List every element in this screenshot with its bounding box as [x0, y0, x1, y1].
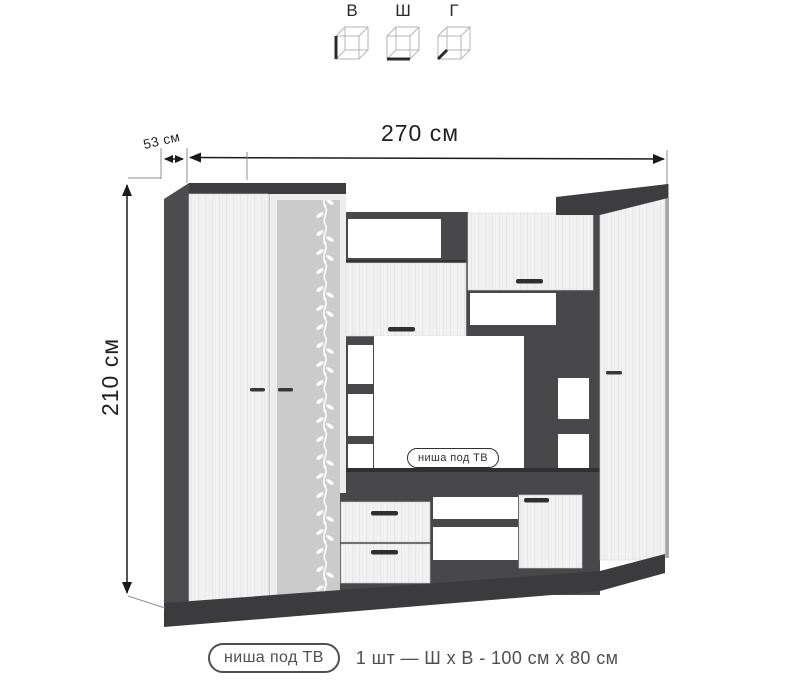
door-handle	[388, 327, 415, 332]
caption-badge: ниша под ТВ	[208, 643, 340, 673]
left-wardrobe-door	[189, 194, 268, 605]
lower-cabinet-door	[519, 495, 582, 568]
height-dimension-label: 210 см	[95, 327, 125, 427]
cube-height-icon	[333, 25, 371, 61]
cube-width-icon	[384, 25, 422, 61]
door-handle	[278, 388, 293, 392]
legend: В Ш	[328, 2, 478, 61]
cube-depth-icon	[435, 25, 473, 61]
legend-item-width: Ш	[384, 2, 422, 61]
door-handle	[524, 498, 549, 503]
tv-niche-label: ниша под ТВ	[407, 448, 499, 468]
open-niche	[348, 219, 441, 258]
left-side-panel	[164, 183, 189, 627]
right-wardrobe-door	[600, 196, 665, 560]
open-shelf	[470, 293, 556, 325]
upper-flap-cabinet-door	[468, 213, 593, 290]
width-dimension-label: 270 см	[330, 120, 510, 147]
width-letter: Ш	[395, 2, 411, 20]
drawer-handle	[371, 511, 398, 516]
left-top-panel	[189, 183, 346, 194]
legend-item-depth: Г	[435, 2, 473, 61]
drawer-handle	[371, 550, 398, 555]
legend-item-height: В	[333, 2, 371, 61]
depth-letter: Г	[449, 2, 458, 20]
height-letter: В	[346, 2, 357, 20]
door-handle	[516, 279, 543, 284]
furniture-diagram: В Ш	[0, 0, 800, 688]
left-shelf-column	[348, 345, 373, 472]
caption-text: 1 шт — Ш х В - 100 см х 80 см	[356, 648, 619, 669]
open-shelves	[433, 497, 518, 560]
caption: ниша под ТВ 1 шт — Ш х В - 100 см х 80 с…	[208, 643, 618, 673]
door-handle	[606, 371, 622, 375]
flap-cabinet-door	[346, 263, 466, 336]
drawer	[341, 544, 430, 583]
glass-door-cabinet	[270, 194, 347, 604]
drawer	[341, 502, 430, 542]
floral-pattern	[314, 200, 340, 597]
door-handle	[250, 388, 265, 392]
